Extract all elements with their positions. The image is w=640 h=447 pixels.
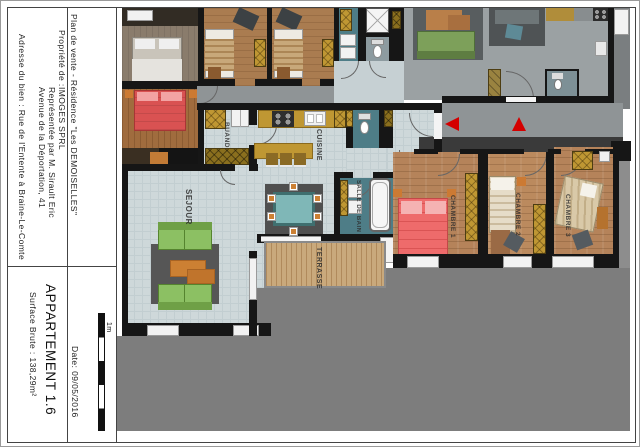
bathtub-inner [372, 182, 388, 228]
bath-cabinet [340, 180, 348, 216]
nightstand [393, 189, 402, 197]
toilet-bowl [373, 45, 382, 58]
date: Date: 09/05/2016 [70, 346, 80, 418]
title-block-divider-horizontal [7, 266, 116, 267]
exterior-ground-left [116, 336, 271, 431]
cabinet [346, 110, 353, 127]
wall [122, 168, 128, 336]
sofa-bottom-back [158, 302, 212, 310]
pillow [137, 92, 158, 101]
coffee-table [187, 269, 215, 284]
nightstand [125, 90, 133, 98]
title-block-divider-inner [67, 7, 68, 442]
exterior-ground-mid [257, 288, 386, 431]
coffee-table [448, 15, 470, 30]
gray-bed-duvet [132, 59, 182, 81]
wall [204, 79, 235, 86]
kitchen-counter [546, 8, 574, 21]
bath-fixture [340, 34, 356, 46]
pillow [491, 178, 514, 190]
dining-chair [267, 194, 276, 203]
label-buanderie: BUAND. [223, 122, 230, 150]
bath-fixture [340, 47, 356, 59]
wall [122, 81, 204, 89]
sofa-back [417, 51, 475, 59]
toilet-bowl [554, 79, 562, 90]
terrasse-deck [264, 241, 386, 288]
toilet [358, 113, 371, 120]
cabinet [392, 11, 401, 29]
upper-corridor-floor [197, 86, 342, 104]
corridor-floor [442, 103, 623, 137]
upper-apt-entrance-gap [506, 97, 536, 102]
wall [613, 147, 619, 263]
cabinet [384, 110, 393, 127]
nightstand [517, 177, 526, 186]
kitchen-counter-gray [574, 8, 593, 21]
desk-chambre3 [597, 207, 608, 229]
window [147, 325, 179, 336]
dresser [277, 67, 290, 79]
entrance-arrow-left [445, 117, 459, 131]
wall [358, 8, 366, 61]
surface-brute: Surface Brute : 138,29m² [28, 292, 38, 397]
stove [272, 111, 294, 127]
wall [546, 152, 554, 263]
dining-chair [289, 227, 298, 236]
washer-divider [240, 108, 241, 127]
dining-chair [313, 212, 322, 221]
pillow [135, 39, 155, 49]
wardrobe [254, 39, 266, 67]
entrance-arrow-up [512, 117, 526, 131]
pillow [580, 183, 597, 199]
window [407, 256, 439, 268]
label-chambre1: CHAMBRE 1 [449, 195, 456, 238]
stove [593, 8, 608, 21]
project-title: Plan de vente - Résidence "Les DEMOISELL… [69, 14, 79, 215]
owner-company: IMOGES SPRL [57, 87, 67, 150]
wall [478, 152, 488, 263]
pillow [161, 92, 182, 101]
window [552, 256, 594, 268]
wardrobe-chambre1 [465, 173, 478, 241]
owner-address: Avenue de la Déportation, 41 [37, 87, 47, 208]
sofa-cushion-line [184, 230, 185, 250]
wall [460, 149, 524, 154]
dresser-white [599, 151, 610, 162]
wall [320, 79, 334, 86]
apartment-title: APPARTEMENT 1.6 [43, 284, 58, 415]
window [249, 258, 257, 300]
wall [267, 8, 272, 86]
pillow [159, 39, 179, 49]
corner-cabinet [334, 110, 346, 128]
label-terrasse: TERRASSE [315, 247, 322, 289]
wall [204, 103, 442, 110]
wardrobe-chambre2 [533, 204, 546, 254]
title-block-divider-outer [116, 7, 117, 442]
window [503, 256, 532, 268]
pillow [401, 201, 422, 214]
owner-label: Propriété de : [57, 30, 67, 87]
stair-window [614, 9, 629, 35]
wall [414, 149, 438, 154]
floor-plan-sheet: SEJOUR BUAND. CUISINE SALLE DE BAIN CHAM… [0, 0, 640, 447]
wall [249, 164, 258, 171]
label-salle-de-bain: SALLE DE BAIN [355, 180, 361, 233]
desk-chair [505, 24, 523, 41]
toilet-bowl [360, 121, 369, 134]
wall [255, 79, 302, 86]
property-address: Adresse du bien : Rue de l'Entente à Bra… [17, 34, 27, 260]
dining-table [273, 192, 315, 226]
label-chambre3: CHAMBRE 3 [564, 194, 571, 237]
balcony-window [127, 10, 153, 21]
nightstand [189, 90, 197, 98]
dining-chair [313, 194, 322, 203]
sink-basin [307, 114, 314, 123]
dining-chair [289, 182, 298, 191]
dresser-orange [150, 152, 168, 164]
fridge [595, 41, 607, 56]
wardrobe-chambre3 [572, 151, 593, 170]
pillow [425, 201, 446, 214]
label-sejour: SEJOUR [184, 189, 193, 225]
desk [495, 10, 539, 24]
sofa-cushion-line [184, 284, 185, 302]
owner-representative: Représentée par M. Sirault Eric [47, 87, 57, 218]
wall [198, 104, 204, 171]
bar-stool [294, 153, 306, 167]
wall [384, 127, 393, 148]
dining-chair [267, 212, 276, 221]
wall [334, 8, 339, 61]
exterior-ground-right [386, 268, 630, 431]
sink-basin [316, 114, 323, 123]
buand-lower-cabinets [205, 148, 249, 165]
wall [122, 164, 204, 171]
wall [249, 109, 257, 125]
label-chambre2: CHAMBRE 2 [514, 193, 521, 236]
bath-cabinet [340, 9, 352, 31]
label-cuisine: CUISINE [315, 129, 322, 161]
bar-stool [280, 153, 292, 167]
dresser [208, 67, 221, 79]
entrance-door-gap [434, 113, 442, 139]
bar-stool [266, 153, 278, 167]
shower [366, 8, 389, 33]
wardrobe [322, 39, 334, 67]
